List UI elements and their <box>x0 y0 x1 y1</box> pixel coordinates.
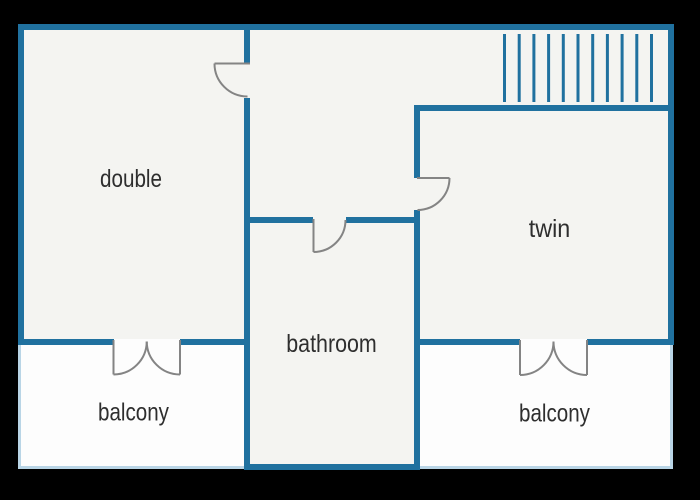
svg-text:twin: twin <box>529 215 571 243</box>
svg-text:bathroom: bathroom <box>286 329 376 357</box>
svg-text:double: double <box>100 164 162 192</box>
svg-text:balcony: balcony <box>519 399 590 427</box>
svg-text:balcony: balcony <box>98 398 169 426</box>
